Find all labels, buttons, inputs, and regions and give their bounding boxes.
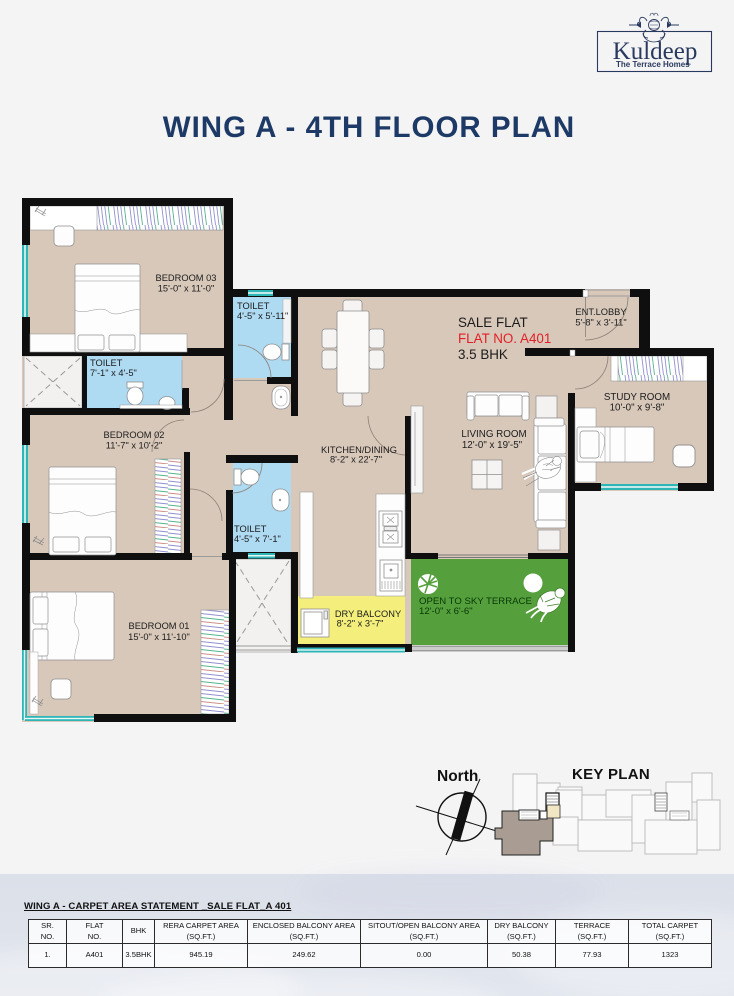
svg-text:STUDY ROOM: STUDY ROOM — [604, 392, 670, 403]
svg-text:DRY BALCONY: DRY BALCONY — [335, 609, 401, 619]
svg-text:11'-7" x 10'-2": 11'-7" x 10'-2" — [106, 441, 163, 451]
svg-text:BEDROOM 01: BEDROOM 01 — [129, 621, 190, 631]
svg-text:12'-0" x 6'-6": 12'-0" x 6'-6" — [419, 606, 473, 617]
svg-text:8'-2" x 22'-7": 8'-2" x 22'-7" — [330, 455, 382, 465]
svg-text:3.5 BHK: 3.5 BHK — [458, 347, 508, 362]
svg-text:BEDROOM 02: BEDROOM 02 — [104, 430, 165, 440]
svg-text:WING A - 4TH FLOOR PLAN: WING A - 4TH FLOOR PLAN — [163, 111, 575, 144]
svg-text:TOILET: TOILET — [90, 358, 123, 368]
svg-text:BEDROOM 03: BEDROOM 03 — [156, 273, 217, 283]
svg-text:FLAT NO. A401: FLAT NO. A401 — [458, 331, 551, 346]
svg-text:TOILET: TOILET — [234, 524, 267, 534]
svg-text:15'-0" x 11'-10": 15'-0" x 11'-10" — [128, 632, 190, 642]
svg-text:North: North — [437, 768, 478, 785]
svg-text:4'-5" x 5'-11": 4'-5" x 5'-11" — [237, 311, 288, 321]
svg-text:KEY PLAN: KEY PLAN — [572, 766, 650, 783]
svg-text:TOILET: TOILET — [237, 301, 270, 311]
svg-text:KITCHEN/DINING: KITCHEN/DINING — [321, 445, 397, 455]
svg-text:LIVING ROOM: LIVING ROOM — [461, 429, 526, 440]
svg-text:SALE FLAT: SALE FLAT — [458, 315, 528, 330]
svg-text:15'-0" x 11'-0": 15'-0" x 11'-0" — [158, 284, 215, 294]
svg-text:10'-0" x 9'-8": 10'-0" x 9'-8" — [610, 403, 665, 414]
svg-text:4'-5" x 7'-1": 4'-5" x 7'-1" — [234, 534, 281, 544]
svg-text:ENT.LOBBY: ENT.LOBBY — [575, 307, 626, 317]
svg-text:The Terrace Homes: The Terrace Homes — [616, 60, 690, 69]
svg-text:7'-1" x 4'-5": 7'-1" x 4'-5" — [90, 368, 137, 378]
svg-text:5'-8" x 3'-11": 5'-8" x 3'-11" — [575, 318, 626, 328]
svg-text:8'-2" x 3'-7": 8'-2" x 3'-7" — [337, 619, 384, 629]
svg-text:12'-0" x 19'-5": 12'-0" x 19'-5" — [462, 440, 523, 451]
